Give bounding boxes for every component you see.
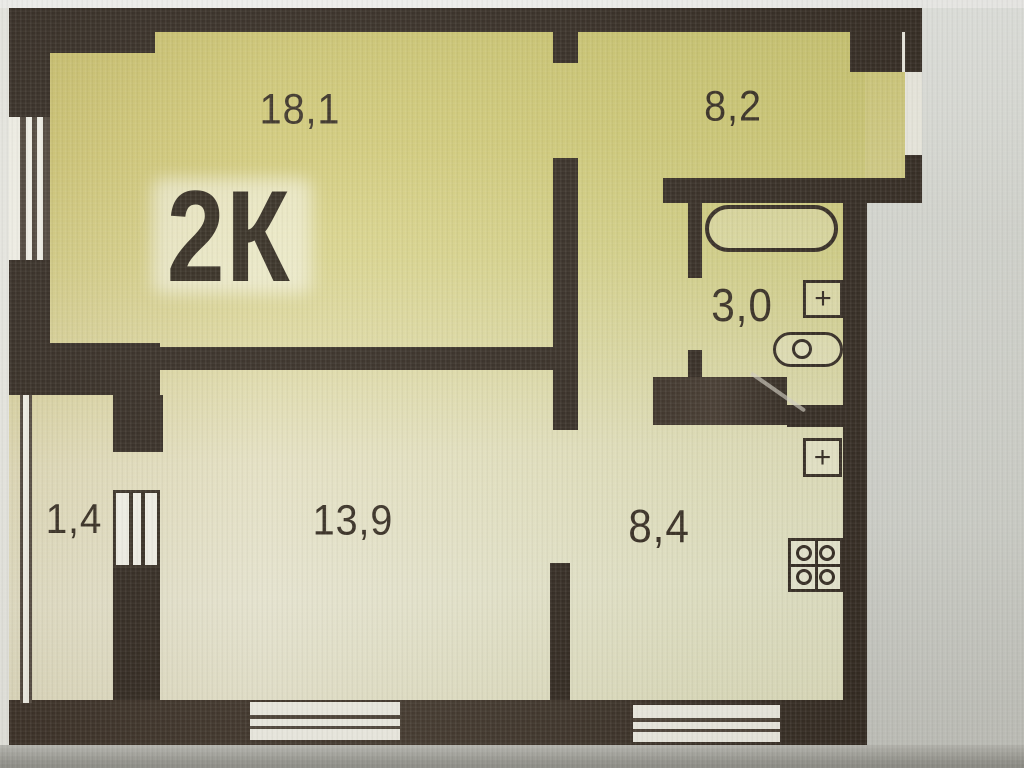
wall-room2-right-bottom <box>905 155 922 185</box>
wall-living-hall <box>147 347 553 370</box>
area-label-bathroom: 3,0 <box>711 278 773 332</box>
wall-room2-bottom <box>663 178 922 203</box>
window-kitchen <box>633 705 780 742</box>
window-hall <box>250 702 400 740</box>
wall-left-step <box>9 343 160 395</box>
wall-kitchen-top <box>787 405 845 427</box>
wall-bathroom-left-stub <box>688 350 702 377</box>
photo-margin-left <box>0 8 9 745</box>
bathtub-icon <box>705 205 838 252</box>
photo-margin-bottom <box>0 745 1024 768</box>
toilet-bowl-icon <box>792 339 812 359</box>
window-living-room <box>9 117 50 260</box>
wall-bathroom-left <box>688 203 702 278</box>
wall-center-top <box>553 8 578 63</box>
wall-closet-stub <box>113 395 163 452</box>
closet-door <box>113 490 160 568</box>
area-label-hall: 13,9 <box>313 497 394 546</box>
wall-left-thin <box>20 395 32 703</box>
wall-left-mid <box>9 260 50 347</box>
wall-closet-lower <box>113 568 160 703</box>
wall-corner-slit <box>902 32 905 72</box>
area-label-kitchen: 8,4 <box>628 499 690 553</box>
kitchen-sink-icon: + <box>803 438 842 477</box>
wall-left-upper <box>9 8 50 117</box>
toilet-icon <box>773 332 843 367</box>
wall-room2-corner-block <box>850 30 902 72</box>
bathroom-sink-icon: + <box>803 280 843 318</box>
area-label-room-2: 8,2 <box>704 83 762 132</box>
stove-icon <box>788 538 843 592</box>
wall-hall-kitchen <box>550 563 570 703</box>
wall-room2-right-top <box>905 8 922 72</box>
floor-plan-photo: + + 2К 18,1 8,2 3,0 1,4 13,9 8,4 <box>0 0 1024 768</box>
plan-title: 2К <box>167 161 292 311</box>
area-label-living-room: 18,1 <box>260 86 341 135</box>
photo-margin-top <box>0 0 1024 8</box>
area-label-closet: 1,4 <box>46 495 102 543</box>
balcony-opening <box>905 72 922 155</box>
wall-right <box>843 195 867 745</box>
wall-center-main <box>553 158 578 430</box>
